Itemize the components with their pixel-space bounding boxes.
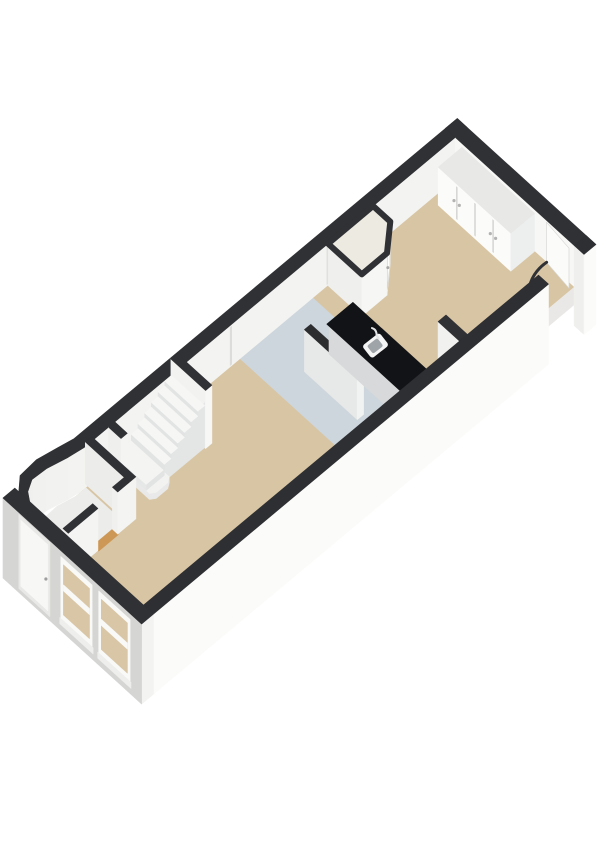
corner-closet-door-handle xyxy=(386,266,389,269)
se-wall-door-jamb xyxy=(574,245,584,334)
wardrobe-knob-3 xyxy=(489,232,492,235)
wardrobe-door-seam-3 xyxy=(493,220,494,253)
wardrobe-knob-1 xyxy=(452,199,455,202)
wardrobe-knob-2 xyxy=(458,204,461,207)
stair-enclosure-wall-se-face xyxy=(206,385,212,448)
se-wall-outer-face-b xyxy=(584,245,596,335)
wardrobe-door-seam-2 xyxy=(475,203,476,236)
wardrobe-knob-4 xyxy=(494,237,497,240)
floorplan-canvas xyxy=(0,0,600,848)
floorplan-3d-view xyxy=(0,0,600,848)
nw-wall-panel-seam-1 xyxy=(230,326,232,365)
facade-corner-sliver xyxy=(142,614,154,704)
vestibule-wall-ne-se-face xyxy=(130,477,136,524)
wardrobe-door-seam-1 xyxy=(456,187,457,220)
front-door-knob xyxy=(44,577,47,580)
vestibule-wall-se-b-sw-face xyxy=(112,487,117,534)
